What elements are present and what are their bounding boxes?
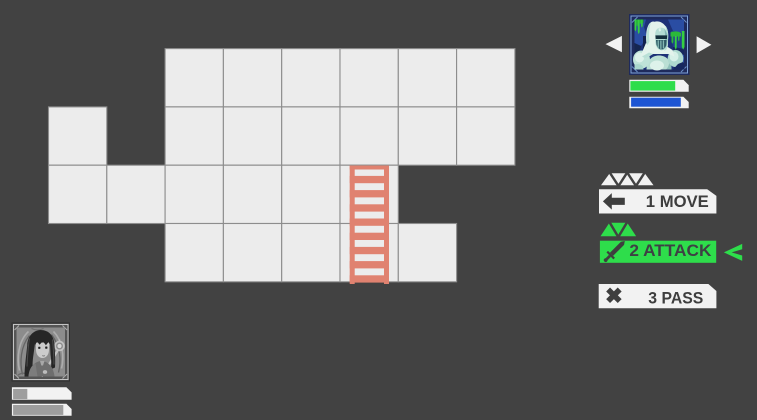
svg-text:1 MOVE: 1 MOVE [646,192,709,211]
svg-text:2 ATTACK: 2 ATTACK [629,241,712,260]
svg-text:3 PASS: 3 PASS [648,288,703,307]
